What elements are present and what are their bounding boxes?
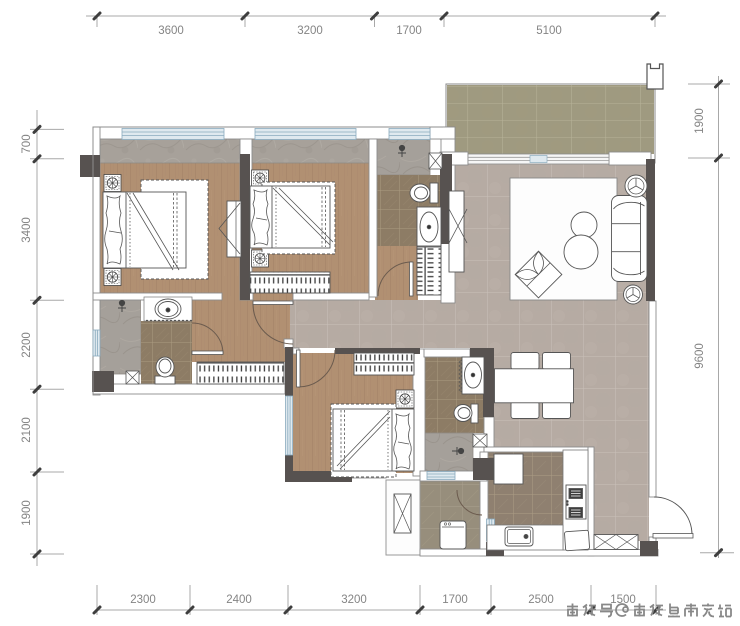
svg-text:3200: 3200 (297, 25, 323, 37)
svg-text:5100: 5100 (536, 25, 562, 37)
svg-text:1900: 1900 (694, 108, 706, 134)
svg-text:2300: 2300 (130, 594, 156, 606)
svg-text:1900: 1900 (21, 500, 33, 526)
svg-text:700: 700 (21, 134, 33, 153)
svg-text:2500: 2500 (528, 594, 554, 606)
svg-text:2200: 2200 (21, 332, 33, 358)
svg-text:2100: 2100 (21, 417, 33, 443)
svg-text:9600: 9600 (694, 343, 706, 369)
svg-text:3200: 3200 (341, 594, 367, 606)
svg-text:2400: 2400 (226, 594, 252, 606)
svg-text:1700: 1700 (442, 594, 468, 606)
svg-text:1700: 1700 (396, 25, 422, 37)
svg-text:3400: 3400 (21, 217, 33, 243)
svg-text:3600: 3600 (158, 25, 184, 37)
